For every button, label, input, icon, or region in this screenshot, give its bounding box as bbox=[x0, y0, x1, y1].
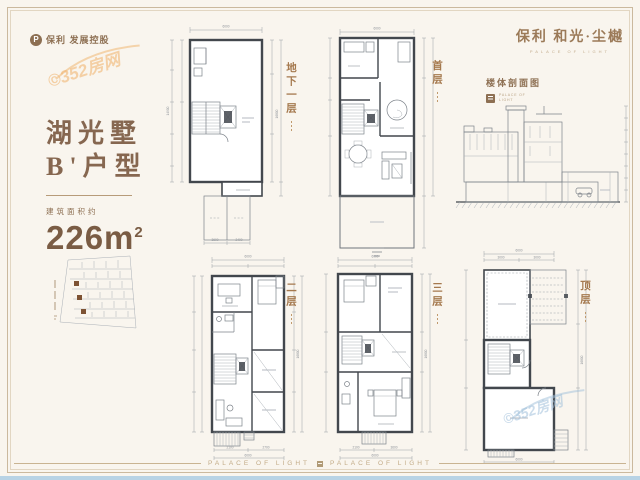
poly-logo-icon: P bbox=[30, 34, 42, 46]
area-label: 建筑面积约 bbox=[46, 206, 147, 217]
floor-label-top: 顶层 bbox=[578, 280, 593, 324]
unit-info: 湖光墅 B'户型 建筑面积约 226m2 bbox=[46, 118, 147, 257]
svg-text:6000: 6000 bbox=[371, 255, 378, 259]
basement-floor-plan: 6000 3600 2400 14900 16800 bbox=[158, 14, 292, 244]
floor-label-first: 首层 bbox=[430, 60, 445, 104]
svg-text:2100: 2100 bbox=[352, 446, 359, 450]
project-logo-title: 保利 和光·尘樾 bbox=[516, 26, 624, 46]
svg-text:3600: 3600 bbox=[390, 446, 397, 450]
site-plan-sketch bbox=[48, 250, 138, 340]
footer-text-left: PALACE OF LIGHT bbox=[208, 460, 310, 467]
unit-type: B'户型 bbox=[46, 151, 147, 184]
svg-text:3600: 3600 bbox=[211, 238, 218, 242]
svg-text:16800: 16800 bbox=[580, 355, 584, 364]
svg-text:16800: 16800 bbox=[424, 349, 428, 358]
bottom-blue-bar bbox=[0, 476, 640, 480]
first-floor-plan: 6000 bbox=[318, 26, 444, 258]
watermark-top-left: ©352房网 bbox=[44, 45, 123, 92]
svg-text:6000: 6000 bbox=[244, 454, 251, 458]
svg-text:6000: 6000 bbox=[373, 27, 380, 31]
footer-logo-mark bbox=[317, 461, 323, 467]
floor-label-basement: 地下一层 bbox=[284, 62, 299, 133]
developer-logo-text: 保利 发展控股 bbox=[46, 33, 110, 46]
building-section-drawing bbox=[450, 98, 635, 220]
floorplan-flyer: P 保利 发展控股 保利 和光·尘樾 PALACE OF LIGHT 湖光墅 B… bbox=[0, 0, 640, 480]
svg-text:2400: 2400 bbox=[235, 238, 242, 242]
developer-logo: P 保利 发展控股 bbox=[30, 33, 110, 46]
footer-text-right: PALACE OF LIGHT bbox=[330, 460, 432, 467]
top-floor-plan: 6000 3000 3000 6000 16800 bbox=[452, 248, 596, 466]
svg-text:2100: 2100 bbox=[226, 446, 233, 450]
info-divider bbox=[46, 195, 132, 196]
svg-text:6000: 6000 bbox=[371, 454, 378, 458]
svg-text:6000: 6000 bbox=[222, 25, 229, 29]
svg-text:2700: 2700 bbox=[262, 446, 269, 450]
floor-label-third: 三层 bbox=[430, 282, 445, 326]
svg-text:16800: 16800 bbox=[296, 349, 300, 358]
floor-label-second: 二层 bbox=[284, 282, 299, 326]
section-view-title: 楼体剖面图 bbox=[486, 76, 541, 89]
project-logo-subtitle: PALACE OF LIGHT bbox=[516, 49, 624, 54]
svg-text:3000: 3000 bbox=[497, 256, 504, 260]
svg-text:3000: 3000 bbox=[533, 256, 540, 260]
footer-line-left bbox=[14, 463, 201, 464]
third-floor-plan: 6000 2100 3600 6000 16800 bbox=[318, 254, 444, 466]
svg-text:14900: 14900 bbox=[166, 106, 170, 115]
project-logo: 保利 和光·尘樾 PALACE OF LIGHT bbox=[516, 26, 624, 54]
villa-name: 湖光墅 bbox=[46, 118, 147, 151]
footer-line-right bbox=[439, 463, 626, 464]
footer-strip: PALACE OF LIGHT PALACE OF LIGHT bbox=[14, 460, 626, 467]
svg-text:6000: 6000 bbox=[244, 255, 251, 259]
svg-text:16800: 16800 bbox=[275, 109, 279, 118]
svg-text:6000: 6000 bbox=[515, 249, 522, 253]
